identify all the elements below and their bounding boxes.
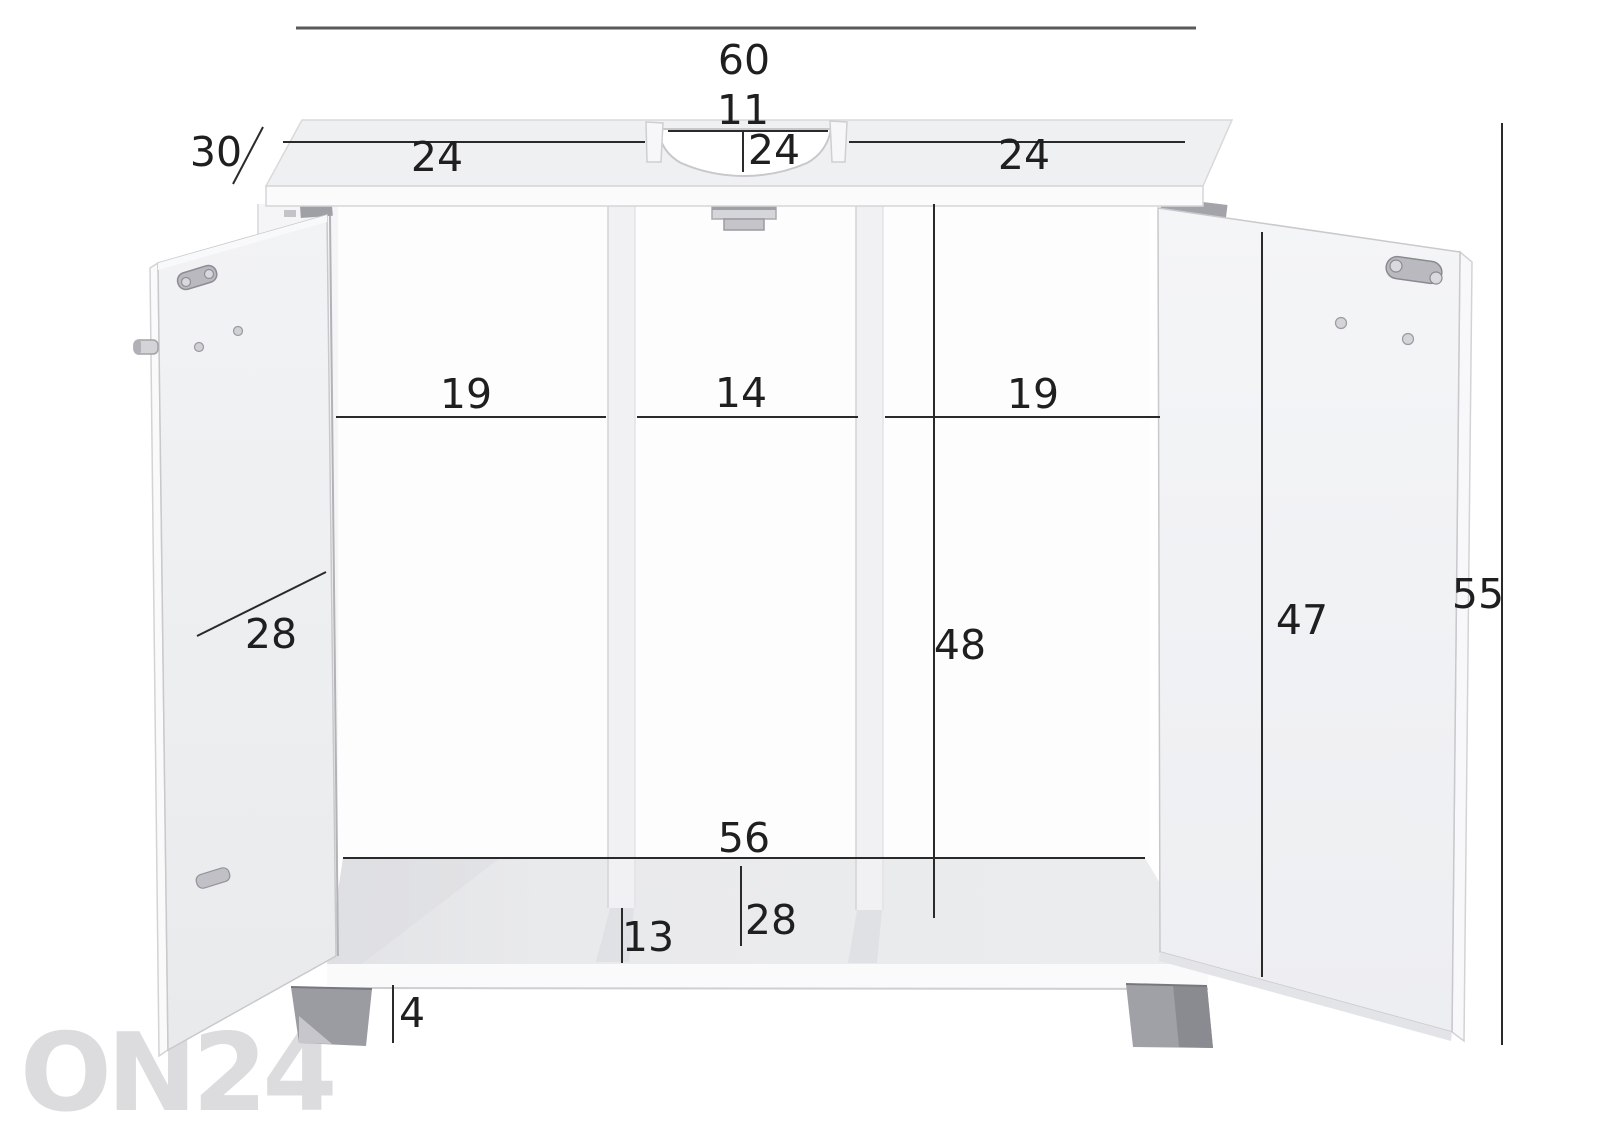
hinge-screw-icon [1390,260,1402,272]
dim-top-left-label: 24 [411,133,463,181]
diagram-page: ON24 [0,0,1600,1145]
divider-left [608,206,635,908]
divider-right [856,206,883,910]
foot-left [291,987,372,1046]
dim-left-door-label: 28 [245,610,297,658]
dim-interior-height-label: 48 [934,621,986,669]
cutout-rim-right [830,121,847,162]
dim-total-width-label: 60 [718,36,770,84]
dim-middle-compartment-label: 14 [715,369,767,417]
dim-bottom-depth-label: 28 [745,896,797,944]
carcass-hinge-left-clip-icon [284,210,296,217]
hinge-screw-icon [205,270,214,279]
bottom-shelf-front-edge [327,988,1208,989]
dim-foot-height-label: 4 [399,989,425,1037]
dim-bottom-clearance-label: 13 [622,913,674,961]
door-screw-icon [1336,318,1347,329]
top-front-face [266,186,1203,206]
dim-top-right-label: 24 [998,131,1050,179]
dim-top-center-label: 24 [748,126,800,174]
foot-right [1126,984,1213,1048]
interior-back-panel [338,202,1150,862]
door-knob-cap-icon [134,340,141,354]
dim-bottom-width-label: 56 [718,814,770,862]
cutout-rim-left [646,122,663,162]
door-screw-icon [195,343,204,352]
dim-right-door-label: 47 [1276,596,1328,644]
dim-right-compartment-label: 19 [1007,370,1059,418]
hinge-screw-icon [1430,272,1442,284]
hinge-screw-icon [182,278,191,287]
cabinet-illustration [134,120,1472,1056]
left-door [134,215,338,1056]
door-screw-icon [234,327,243,336]
cabinet-dimension-drawing: ON24 [0,0,1600,1145]
bottom-shelf-front-band [327,964,1208,989]
dim-depth-label: 30 [190,128,242,176]
door-screw-icon [1403,334,1414,345]
dim-total-height-label: 55 [1452,570,1504,618]
dim-left-compartment-label: 19 [440,370,492,418]
